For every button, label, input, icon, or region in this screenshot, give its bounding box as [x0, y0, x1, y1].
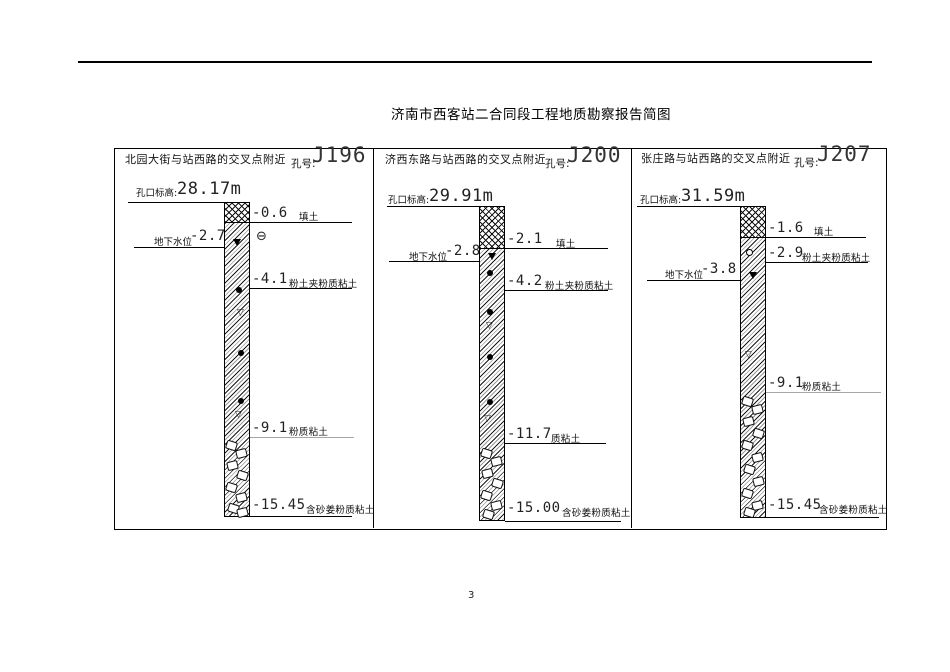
water-level-icon: [488, 253, 496, 260]
layer-soil-label: 粉土夹粉质粘土: [545, 278, 614, 292]
layer-soil-label: 粉土夹粉质粘土: [802, 250, 871, 264]
layer-soil-label: 粉土夹粉质粘土: [289, 276, 358, 290]
groundwater-line: [134, 247, 224, 248]
groundwater-line: [389, 261, 479, 262]
layer-boundary-line: [766, 517, 879, 518]
panel-location: 北园大街与站西路的交叉点附近: [125, 151, 286, 167]
circled-minus-icon: ⊖: [256, 229, 267, 244]
elevation-label: 孔口标高:: [388, 192, 429, 206]
layer-soil-label: 填土: [814, 224, 834, 238]
sample-dot: [487, 354, 493, 360]
sample-dot: [236, 287, 242, 293]
water-level-icon: [749, 272, 757, 279]
sample-dot: [487, 309, 493, 315]
groundwater-depth: -2.7: [190, 228, 226, 244]
page-title: 济南市西客站二合同段工程地质勘察报告简图: [391, 103, 671, 123]
fill-layer-hatch: [741, 207, 765, 238]
sample-dot: [487, 399, 493, 405]
layer-soil-label: 含砂姜粉质粘土: [562, 505, 631, 519]
triangle-marker-icon: ▽: [235, 411, 242, 420]
layer-boundary-line: [505, 521, 621, 522]
layer-depth-label: -0.6: [252, 205, 288, 221]
layer-soil-label: 粉质粘土: [802, 379, 841, 393]
elevation-value: 31.59m: [681, 186, 745, 206]
ground-surface-line: [387, 206, 479, 207]
layer-depth-label: -4.2: [507, 273, 543, 289]
layer-soil-label: 含砂姜粉质粘土: [306, 502, 375, 516]
layer-depth-label: -15.45: [252, 497, 306, 513]
hole-number: J196: [312, 143, 367, 167]
triangle-marker-icon: ▽: [237, 309, 244, 318]
hole-number-label: 孔号:: [545, 156, 570, 171]
layer-depth-label: -4.1: [252, 271, 288, 287]
layer-depth-label: -2.1: [507, 231, 543, 247]
hole-number: J207: [817, 142, 872, 166]
layer-depth-label: -11.7: [507, 426, 552, 442]
layer-soil-label: 填土: [299, 209, 319, 223]
triangle-marker-icon: ▽: [745, 351, 752, 360]
layer-soil-label: 粉质粘土: [289, 424, 328, 438]
layer-depth-label: -2.9: [768, 245, 804, 261]
hole-number-label: 孔号:: [794, 155, 819, 170]
layer-depth-label: -15.45: [768, 497, 822, 513]
sample-dot: [487, 270, 493, 276]
panel-location: 张庄路与站西路的交叉点附近: [641, 150, 791, 166]
layer-depth-label: -15.00: [507, 500, 561, 516]
triangle-marker-icon: ▽: [486, 322, 493, 331]
elevation-value: 29.91m: [429, 186, 493, 206]
layer-soil-label: 含砂姜粉质粘土: [819, 502, 888, 516]
groundwater-depth: -2.8: [445, 243, 481, 259]
triangle-marker-icon: ▽: [484, 415, 491, 424]
panel-location: 济西东路与站西路的交叉点附近: [385, 151, 546, 167]
page-number: 3: [468, 590, 474, 601]
layer-soil-label: 填土: [556, 236, 576, 250]
ground-surface-line: [637, 206, 740, 207]
fill-layer-hatch: [225, 203, 249, 223]
elevation-label: 孔口标高:: [136, 185, 177, 199]
report-page: 济南市西客站二合同段工程地质勘察报告简图 北园大街与站西路的交叉点附近 孔号: …: [0, 0, 950, 672]
panel-divider: [631, 149, 632, 528]
groundwater-depth: -3.8: [701, 261, 737, 277]
header-rule: [78, 61, 872, 63]
layer-depth-label: -1.6: [768, 220, 804, 236]
water-level-icon: [233, 239, 241, 246]
elevation-value: 28.17m: [177, 179, 241, 199]
sample-dot: [238, 350, 244, 356]
layer-depth-label: -9.1: [252, 420, 288, 436]
elevation-label: 孔口标高:: [640, 192, 681, 206]
layer-depth-label: -9.1: [768, 375, 804, 391]
layer-soil-label: 质粘土: [551, 431, 580, 445]
groundwater-line: [647, 280, 740, 281]
hole-number: J200: [567, 143, 622, 167]
groundwater-label: 地下水位: [154, 234, 192, 248]
groundwater-label: 地下水位: [665, 267, 703, 281]
layer-boundary-line: [250, 516, 352, 517]
circle-marker-icon: [746, 249, 753, 256]
fill-layer-hatch: [480, 207, 504, 249]
sample-dot: [238, 398, 244, 404]
ground-surface-line: [128, 202, 225, 203]
panel-divider: [373, 149, 374, 528]
